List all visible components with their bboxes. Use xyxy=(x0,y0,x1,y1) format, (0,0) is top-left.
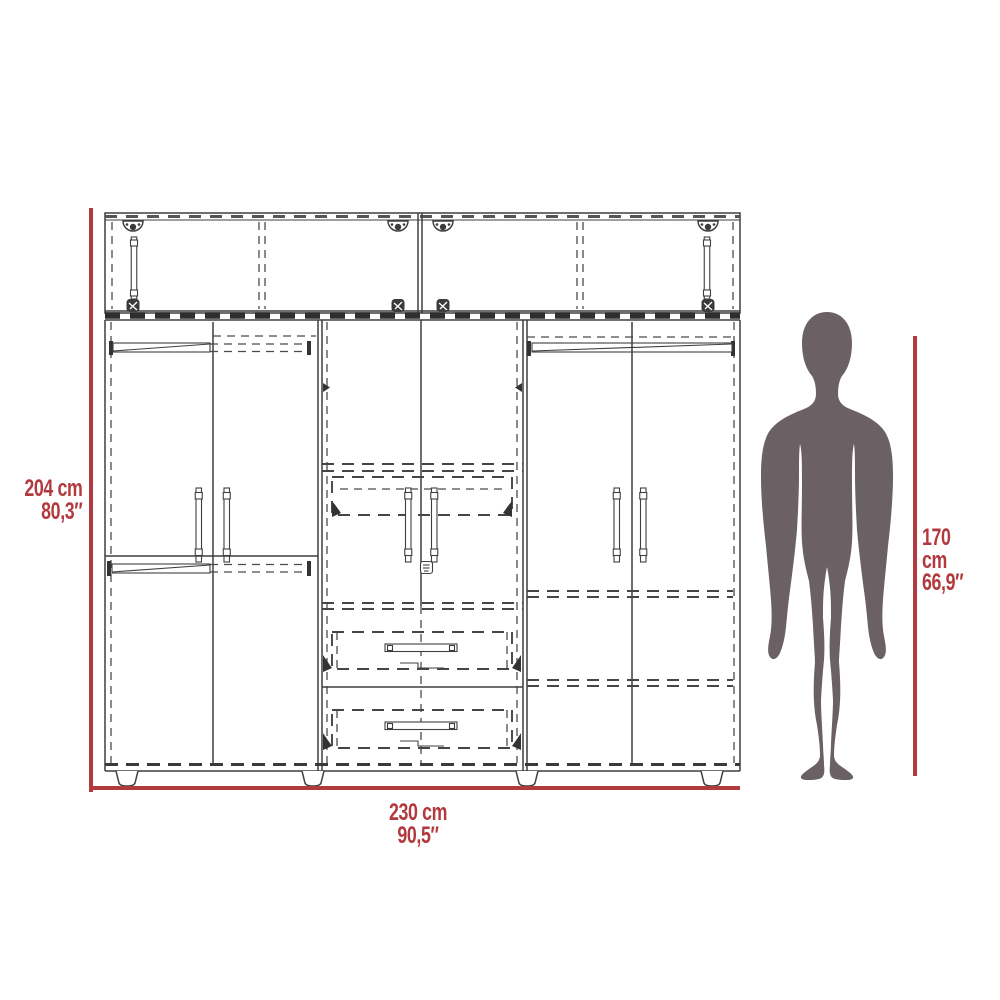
person-height-dimension-line xyxy=(913,336,917,776)
wardrobe-height-label: 204 cm 80,3″ xyxy=(24,478,82,523)
hanging-rod xyxy=(527,341,735,356)
hanging-rod xyxy=(109,341,311,355)
drawer-handle xyxy=(385,722,457,730)
person-height-cm: 170 cm xyxy=(922,527,980,572)
hanging-rod xyxy=(107,561,311,576)
wardrobe-width-inches: 90,5″ xyxy=(344,825,492,848)
product-dimension-diagram: 204 cm 80,3″ 230 cm 90,5″ 170 cm 66,9″ xyxy=(0,0,1000,1000)
door-handle xyxy=(223,488,230,562)
drawer xyxy=(323,632,521,672)
drawer xyxy=(323,710,521,750)
center-wardrobe-section xyxy=(322,320,523,763)
wardrobe-width-label: 230 cm 90,5″ xyxy=(344,802,492,847)
left-wardrobe-section xyxy=(105,322,330,763)
door-handle xyxy=(613,488,620,562)
door-handle xyxy=(431,488,438,562)
lock-icon xyxy=(421,562,433,574)
top-cabinet-row xyxy=(105,213,740,313)
door-handle xyxy=(405,488,412,562)
wardrobe-width-dimension-line xyxy=(93,786,740,790)
hidden-interior-drawer xyxy=(332,477,512,517)
wardrobe-height-inches: 80,3″ xyxy=(24,501,82,524)
right-wardrobe-section xyxy=(515,322,735,763)
human-silhouette xyxy=(749,310,905,780)
door-handle xyxy=(704,237,711,299)
wardrobe-feet xyxy=(116,771,723,786)
person-height-label: 170 cm 66,9″ xyxy=(922,527,980,595)
door-handle xyxy=(131,237,138,299)
hinge-icon xyxy=(127,299,715,312)
person-height-inches: 66,9″ xyxy=(922,572,980,595)
door-handle xyxy=(195,488,202,562)
drawer-handle xyxy=(385,644,457,652)
wardrobe-height-dimension-line xyxy=(89,208,93,792)
door-handle xyxy=(640,488,647,562)
hinge-icon xyxy=(123,221,718,231)
